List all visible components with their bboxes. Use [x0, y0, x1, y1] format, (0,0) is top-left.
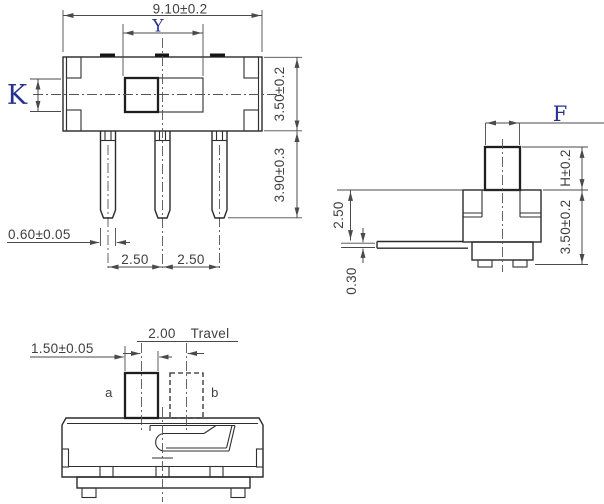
dim-terminal-thickness: 0.30 [344, 267, 359, 294]
front-view: 9.10±0.2 Y K 3.50±0.2 3.90±0.3 0.60 [7, 2, 302, 269]
dim-side-knob-width: F [553, 102, 568, 126]
dim-travel: 2.00 [148, 326, 175, 341]
front-corner-tr [244, 57, 259, 78]
position-b-label: b [211, 385, 219, 400]
dim-bottom-knob-width: 1.50±0.05 [31, 341, 94, 356]
bottom-base [77, 477, 250, 488]
drawing-canvas: 9.10±0.2 Y K 3.50±0.2 3.90±0.3 0.60 [0, 0, 604, 504]
dim-front-width: 9.10±0.2 [153, 2, 208, 17]
slide-switch-technical-drawing: 9.10±0.2 Y K 3.50±0.2 3.90±0.3 0.60 [0, 0, 604, 504]
travel-label: Travel [191, 326, 230, 341]
dim-terminal-length: 3.90±0.3 [272, 148, 287, 203]
position-a-label: a [105, 385, 113, 400]
dim-front-slot-width: Y [151, 17, 164, 37]
front-slot [125, 78, 203, 112]
dim-front-knob-height: K [7, 80, 28, 111]
side-view: F H±0.2 3.50±0.2 2.50 0.30 [331, 102, 604, 295]
dim-side-body-height: 3.50±0.2 [558, 200, 573, 255]
side-terminal [377, 242, 468, 249]
dim-front-body-height: 3.50±0.2 [272, 67, 287, 122]
front-corner-bl [67, 110, 82, 131]
front-corner-tl [67, 57, 82, 78]
front-terminals [101, 132, 228, 219]
side-body [463, 190, 541, 242]
dim-terminal-width: 0.60±0.05 [8, 227, 71, 242]
dim-terminal-drop: 2.50 [331, 201, 346, 228]
bottom-view: 1.50±0.05 2.00 Travel a b [30, 326, 263, 502]
dim-side-knob-height: H±0.2 [558, 149, 573, 186]
front-knob [125, 78, 158, 112]
front-corner-br [244, 110, 259, 131]
dim-pitch-right: 2.50 [177, 252, 204, 267]
dim-pitch-left: 2.50 [121, 252, 148, 267]
